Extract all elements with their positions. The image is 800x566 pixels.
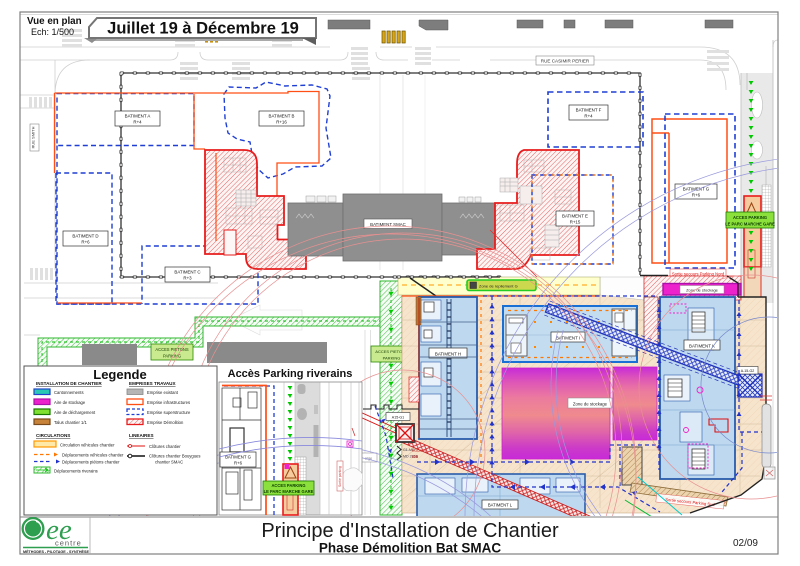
svg-text:Circulation véhicules chantier: Circulation véhicules chantier <box>60 443 115 448</box>
svg-text:LE PARC MARCHE GARE: LE PARC MARCHE GARE <box>264 489 314 494</box>
svg-text:BATIMENT E: BATIMENT E <box>562 214 588 219</box>
svg-text:BATIMENT I: BATIMENT I <box>556 336 580 341</box>
svg-text:R+6: R+6 <box>234 461 243 466</box>
svg-text:R+15: R+15 <box>570 220 581 225</box>
svg-text:Emprise superstructure: Emprise superstructure <box>147 410 191 415</box>
svg-text:Déplacements piétons chantier: Déplacements piétons chantier <box>62 460 120 465</box>
svg-text:Sortie parking: Sortie parking <box>338 466 342 487</box>
svg-text:BATIMENT B: BATIMENT B <box>269 114 295 119</box>
svg-text:Zone de stockage: Zone de stockage <box>573 402 608 407</box>
svg-text:RUE CASIMIR PERIER: RUE CASIMIR PERIER <box>541 59 590 64</box>
svg-text:Accès Parking riverains: Accès Parking riverains <box>228 368 353 380</box>
svg-text:R+4: R+4 <box>584 114 593 119</box>
svg-text:R+3: R+3 <box>183 276 192 281</box>
svg-text:Clôtures chantier: Clôtures chantier <box>149 444 181 449</box>
svg-text:ACCES PIETONS: ACCES PIETONS <box>155 347 188 352</box>
svg-text:Aire de déchargement: Aire de déchargement <box>54 410 96 415</box>
svg-text:RUE SMITH: RUE SMITH <box>31 126 36 148</box>
svg-text:Ech: 1/500: Ech: 1/500 <box>31 27 74 37</box>
svg-text:BATIMENT F: BATIMENT F <box>576 108 602 113</box>
svg-text:Emprise existant: Emprise existant <box>147 390 179 395</box>
svg-text:BATIMENT A: BATIMENT A <box>125 114 151 119</box>
svg-text:02/09: 02/09 <box>733 538 758 549</box>
svg-text:Clôtures chantier Bouygues: Clôtures chantier Bouygues <box>149 454 200 459</box>
svg-text:R+6: R+6 <box>81 240 90 245</box>
svg-text:EMPRISES TRAVAUX: EMPRISES TRAVAUX <box>129 381 176 386</box>
svg-text:Legende: Legende <box>93 367 146 382</box>
svg-text:ACCES PARKING: ACCES PARKING <box>733 215 767 220</box>
svg-text:INSTALLATION DE CHANTIER: INSTALLATION DE CHANTIER <box>36 381 102 386</box>
svg-text:Principe d'Installation de Cha: Principe d'Installation de Chantier <box>261 520 559 542</box>
svg-text:CIRCULATIONS: CIRCULATIONS <box>36 433 70 438</box>
svg-text:Zone de repliement G: Zone de repliement G <box>479 284 518 289</box>
svg-text:A-15-G2: A-15-G2 <box>741 369 755 373</box>
svg-text:Juillet 19 à Décembre 19: Juillet 19 à Décembre 19 <box>107 20 299 38</box>
svg-text:Emprise Démolition: Emprise Démolition <box>147 420 184 425</box>
svg-text:ACCES PARKING: ACCES PARKING <box>271 483 305 488</box>
svg-text:BATIMENT D: BATIMENT D <box>72 234 98 239</box>
svg-text:BATIMENT K: BATIMENT K <box>689 344 715 349</box>
svg-text:LE PARC MARCHE GARE: LE PARC MARCHE GARE <box>725 222 775 227</box>
svg-text:Déplacements véhicules chantie: Déplacements véhicules chantier <box>62 453 124 458</box>
svg-text:BATIMENT H: BATIMENT H <box>435 352 461 357</box>
svg-text:ROUS PE: ROUS PE <box>412 449 428 453</box>
svg-text:R+16: R+16 <box>276 120 287 125</box>
svg-text:Vue en plan: Vue en plan <box>27 16 82 27</box>
svg-text:Aire de stockage: Aire de stockage <box>54 400 86 405</box>
svg-text:BATIMENT C: BATIMENT C <box>174 270 200 275</box>
svg-text:85B: 85B <box>412 455 419 459</box>
svg-text:LINEAIRES: LINEAIRES <box>129 433 154 438</box>
svg-text:Talus chantier 1/1: Talus chantier 1/1 <box>54 420 87 425</box>
svg-text:Déplacements riverains: Déplacements riverains <box>54 469 98 474</box>
svg-text:BATIMENT G: BATIMENT G <box>683 187 710 192</box>
svg-text:A15-G1: A15-G1 <box>392 416 404 420</box>
svg-text:BATIMENT L: BATIMENT L <box>488 503 513 508</box>
svg-text:chantier SMAC: chantier SMAC <box>155 460 183 465</box>
svg-text:BATIMENT G: BATIMENT G <box>225 455 252 460</box>
svg-text:Cantonnements: Cantonnements <box>54 390 84 395</box>
svg-text:Zone de stockage: Zone de stockage <box>686 288 719 293</box>
svg-text:MÉTHODES - PILOTAGE - SYNTHÈSE: MÉTHODES - PILOTAGE - SYNTHÈSE <box>23 549 89 554</box>
svg-text:R+6: R+6 <box>692 193 701 198</box>
svg-text:PARKING: PARKING <box>383 356 401 361</box>
svg-text:centre: centre <box>55 539 82 548</box>
svg-text:Phase Démolition Bat SMAC: Phase Démolition Bat SMAC <box>319 541 502 556</box>
svg-text:Emprise infrastructures: Emprise infrastructures <box>147 400 190 405</box>
svg-text:R+4: R+4 <box>133 120 142 125</box>
